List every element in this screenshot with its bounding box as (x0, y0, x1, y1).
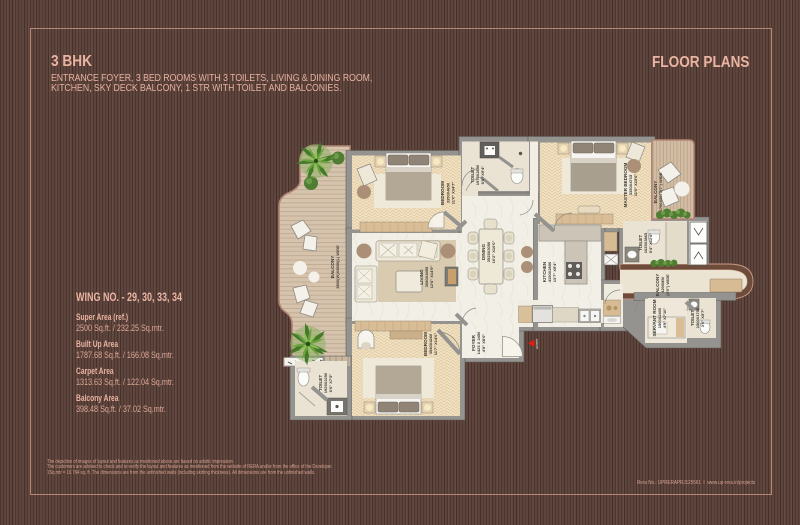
svg-text:11'0" X34'7": 11'0" X34'7" (451, 182, 456, 205)
svg-text:10'2" X10'0": 10'2" X10'0" (491, 240, 496, 263)
svg-text:4'8" X8'0": 4'8" X8'0" (481, 334, 486, 352)
svg-text:BEDROOM: BEDROOM (440, 181, 445, 205)
svg-text:11'0" X15'6": 11'0" X15'6" (633, 174, 638, 197)
svg-text:6'6" X9'4": 6'6" X9'4" (480, 166, 485, 184)
svg-text:(4'0") WIDE: (4'0") WIDE (665, 274, 670, 296)
svg-text:ENTRY: ENTRY (535, 338, 539, 348)
svg-text:11'7" X14'0": 11'7" X14'0" (433, 333, 438, 356)
svg-text:1700X5675(7'') WIDE: 1700X5675(7'') WIDE (658, 172, 663, 211)
svg-text:3'0" X5'7": 3'0" X5'7" (700, 309, 705, 327)
svg-text:12'6" X14'9": 12'6" X14'9" (429, 265, 434, 288)
svg-text:3800(W)X5650(L) WIDE: 3800(W)X5650(L) WIDE (335, 245, 340, 289)
svg-text:4'9" X7'10": 4'9" X7'10" (662, 308, 667, 329)
svg-text:5'4" X12'8": 5'4" X12'8" (648, 233, 653, 254)
svg-text:13'7" X9'4": 13'7" X9'4" (552, 262, 557, 283)
svg-text:6'6" X7'5": 6'6" X7'5" (328, 374, 333, 392)
